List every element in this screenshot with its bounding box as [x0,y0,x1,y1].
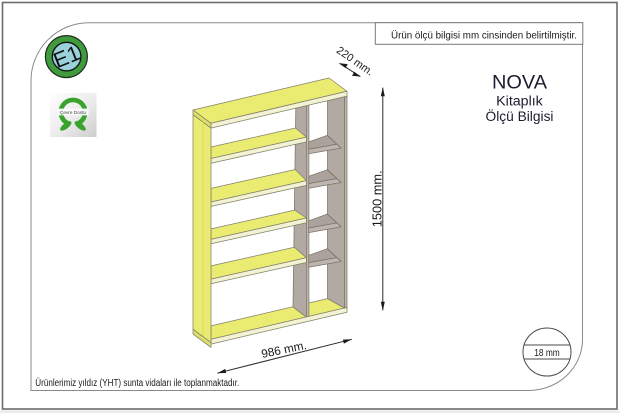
svg-text:1500 mm.: 1500 mm. [370,170,385,227]
svg-text:NOVA: NOVA [492,72,547,94]
svg-text:Ürünlerimiz yıldız (YHT) sunta: Ürünlerimiz yıldız (YHT) sunta vidaları … [35,378,239,389]
svg-text:Çevre Dostu: Çevre Dostu [60,110,86,115]
svg-text:18 mm: 18 mm [534,347,560,359]
svg-text:Ürün ölçü bilgisi mm cinsinden: Ürün ölçü bilgisi mm cinsinden belirtilm… [391,29,577,41]
svg-text:Ölçü Bilgisi: Ölçü Bilgisi [486,107,554,124]
svg-text:Kitaplık: Kitaplık [496,93,544,109]
